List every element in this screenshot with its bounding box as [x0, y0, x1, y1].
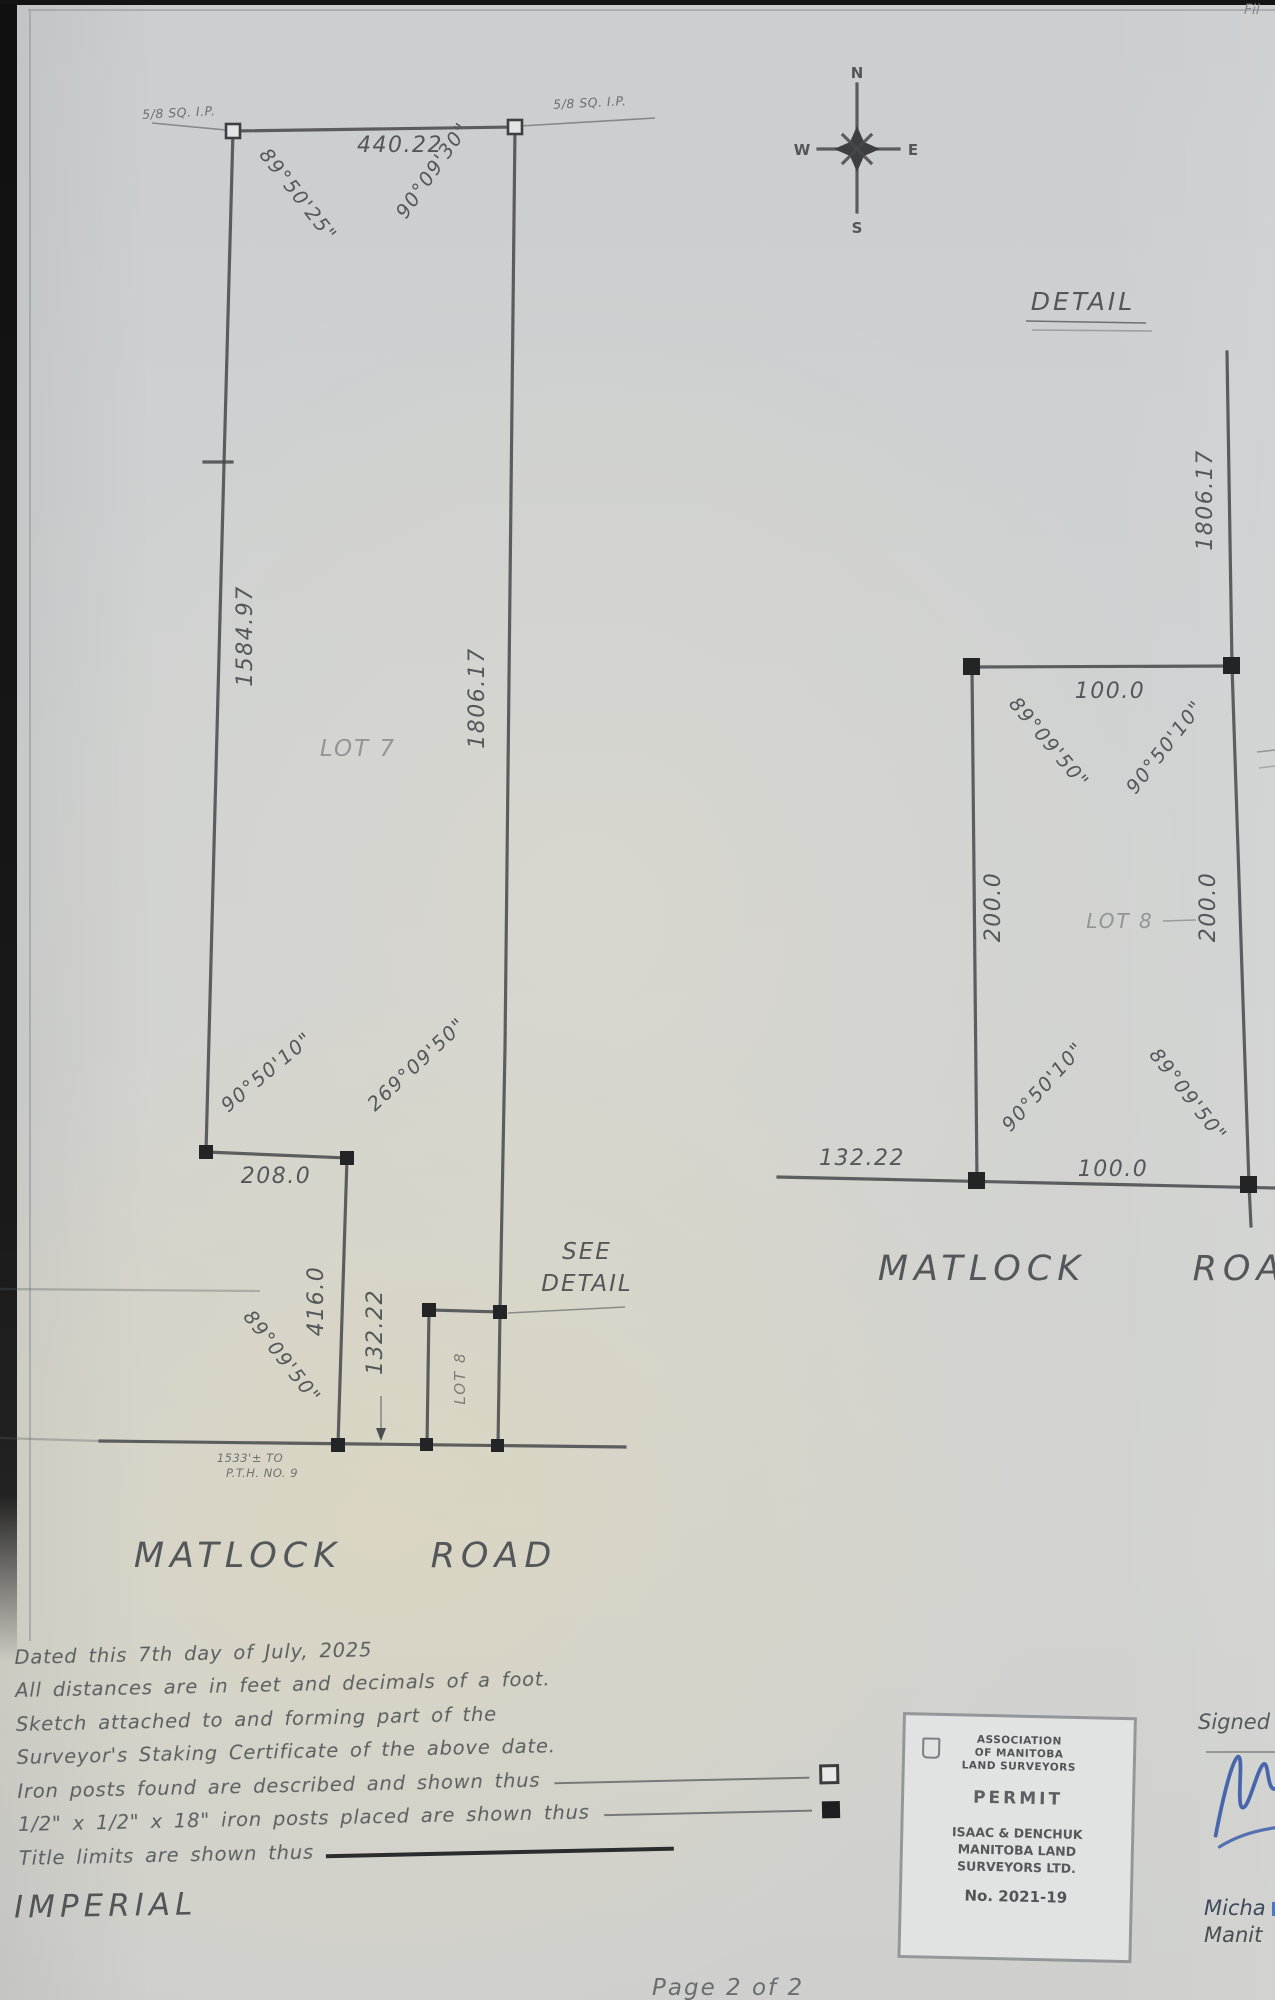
detail-east-approach-line — [1227, 352, 1232, 666]
detail-post-sw-icon — [968, 1172, 985, 1189]
jog-distance-label: 208.0 — [241, 1164, 311, 1189]
lot8-west-distance-label: 416.0 — [304, 1266, 329, 1336]
permit-stamp: ASSOCIATION OF MANITOBA LAND SURVEYORS P… — [897, 1712, 1137, 1963]
road-title-limit-line — [100, 1441, 625, 1447]
placed-post-jog-west-icon — [199, 1145, 213, 1159]
placed-post-lot8-sw-icon — [420, 1438, 433, 1451]
detail-heading-underline-2 — [1032, 330, 1152, 331]
detail-post-se-icon — [1240, 1176, 1257, 1193]
detail-east-approach-label: 1806.17 — [1193, 449, 1218, 550]
detail-road-west-label: 132.22 — [819, 1146, 905, 1171]
east-distance-label: 1806.17 — [465, 647, 490, 748]
detail-north-distance-label: 100.0 — [1075, 679, 1145, 704]
monument-ne-label: 5/8 SQ. I.P. — [553, 93, 627, 112]
monument-nw-label: 5/8 SQ. I.P. — [142, 103, 216, 122]
detail-road-line — [778, 1177, 1275, 1188]
monument-ne-leader-line — [520, 118, 655, 126]
detail-south-distance-label: 100.0 — [1078, 1157, 1148, 1182]
west-distance-label: 1584.97 — [233, 585, 258, 686]
jog-boundary-line — [206, 1152, 347, 1158]
detail-lot8-label: LOT 8 — [1086, 909, 1154, 933]
detail-bearing-ne-label: 90°50'10" — [1121, 696, 1208, 798]
detail-west-distance-label: 200.0 — [981, 872, 1006, 942]
detail-west-line — [972, 667, 977, 1181]
found-post-symbol-icon — [819, 1764, 839, 1784]
detail-east-tick-2 — [1259, 766, 1275, 768]
detail-east-distance-label: 200.0 — [1196, 872, 1221, 942]
road-name-road: ROAD — [431, 1536, 558, 1576]
placed-post-lot8-ne-icon — [493, 1305, 507, 1319]
permit-number: No. 2021-19 — [902, 1885, 1130, 1908]
detail-heading: DETAIL — [1031, 287, 1135, 316]
detail-road-name-matlock: MATLOCK — [878, 1249, 1086, 1289]
scanned-survey-sketch-page: Fil — [0, 0, 1275, 2000]
page-number: Page 2 of 2 — [652, 1975, 804, 2000]
lot8-west-boundary-line — [338, 1158, 347, 1445]
certificate-notes: Dated this 7th day of July, 2025 All dis… — [14, 1617, 841, 1869]
road-north-limit-faint — [0, 1289, 260, 1291]
signed-label-text: Signed — [1198, 1710, 1270, 1734]
see-detail-label-line1: SEE — [562, 1239, 612, 1265]
found-posts-leader-line — [554, 1776, 809, 1784]
compass-north-label: N — [851, 64, 864, 82]
lot8-north-boundary-line — [429, 1310, 501, 1312]
placed-posts-leader-line — [604, 1810, 812, 1817]
lot8-inner-west-line — [427, 1310, 429, 1445]
lot8-label-main: LOT 8 — [451, 1351, 469, 1404]
detail-bearing-nw-label: 89°09'50" — [1004, 693, 1094, 794]
pth-note-line2: P.T.H. NO. 9 — [226, 1466, 298, 1480]
east-boundary-line — [498, 127, 515, 1446]
placed-post-lot8-nw-icon — [422, 1303, 436, 1317]
bearing-jog-west-label: 90°50'10" — [217, 1027, 318, 1117]
placed-post-symbol-icon — [822, 1801, 840, 1818]
monument-nw-leader-line — [152, 123, 226, 130]
detail-bearing-se-label: 89°09'50" — [1145, 1044, 1232, 1146]
detail-heading-underline — [1026, 321, 1146, 323]
signature-stroke-2 — [1219, 1826, 1275, 1847]
firm-name-block: ISAAC & DENCHUK MANITOBA LAND SURVEYORS … — [902, 1822, 1131, 1878]
placed-post-lot8-se-icon — [491, 1439, 504, 1452]
detail-lot8-leader — [1163, 920, 1196, 921]
surveyor-affiliation-partial: Manit — [1204, 1923, 1262, 1947]
found-post-nw-icon — [226, 124, 240, 138]
detail-post-nw-icon — [963, 658, 980, 675]
detail-post-ne-icon — [1223, 657, 1240, 674]
compass-west-label: W — [794, 141, 811, 159]
frontage-arrowhead — [376, 1428, 386, 1441]
units-label: IMPERIAL — [14, 1886, 198, 1925]
detail-inset-lot8: DETAIL 1806.17 100.0 89°09'50" 90°50'10"… — [778, 287, 1275, 1289]
placed-post-416-south-icon — [331, 1438, 345, 1452]
surveyor-name-partial: Micha — [1204, 1896, 1275, 1920]
main-parcel-lot7: 5/8 SQ. I.P. 5/8 SQ. I.P. 440.22 89°50'2… — [0, 93, 655, 1576]
lot8-frontage-label: 132.22 — [363, 1289, 388, 1375]
detail-east-tick-1 — [1257, 750, 1275, 752]
detail-road-name-road: ROAD — [1193, 1249, 1275, 1289]
detail-east-line — [1232, 666, 1251, 1226]
bearing-nw-label: 89°50'25" — [255, 144, 342, 246]
west-boundary-line — [206, 131, 233, 1152]
title-limits-line-sample — [326, 1846, 674, 1858]
signature-stroke-1 — [1216, 1757, 1275, 1836]
road-name-matlock: MATLOCK — [134, 1536, 342, 1576]
detail-bearing-sw-label: 90°50'10" — [997, 1037, 1089, 1136]
permit-word: PERMIT — [904, 1786, 1132, 1811]
compass-south-label: S — [852, 219, 863, 237]
see-detail-label-line2: DETAIL — [541, 1271, 633, 1297]
road-title-limit-faint-west — [0, 1438, 100, 1441]
surveyors-association-emblem-icon — [922, 1737, 940, 1758]
found-post-ne-icon — [508, 120, 522, 134]
north-arrow-compass: N S W E — [794, 64, 918, 237]
surveyor-name-text: Micha — [1204, 1896, 1266, 1920]
bearing-jog-east-label: 269°09'50" — [363, 1013, 471, 1116]
pth-note-line1: 1533'± TO — [217, 1451, 283, 1465]
signature-scribble — [1210, 1738, 1275, 1858]
detail-north-line — [972, 666, 1232, 667]
compass-east-label: E — [908, 141, 918, 159]
lot7-label: LOT 7 — [320, 736, 396, 762]
placed-post-jog-east-icon — [340, 1151, 354, 1165]
see-detail-leader-line — [508, 1307, 625, 1313]
